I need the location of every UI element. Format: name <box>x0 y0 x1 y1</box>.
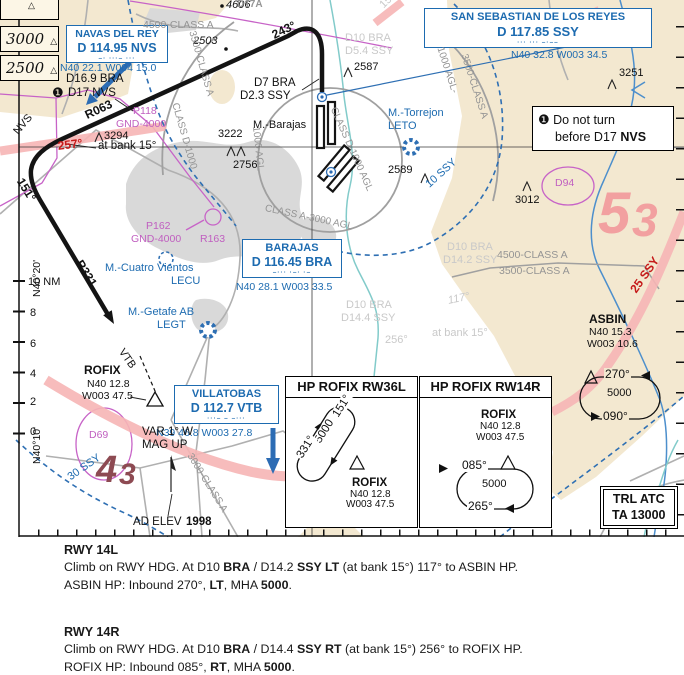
proc-text: ASBIN HP: Inbound 270°, <box>64 578 209 592</box>
proc-text-bold: BRA <box>223 560 250 574</box>
holding-patterns-layer <box>0 0 684 537</box>
proc-text-bold: SSY LT <box>297 560 339 574</box>
proc-text-bold: SSY RT <box>297 642 342 656</box>
holding-rw14r <box>457 469 533 509</box>
proc-rwy14l-line2: ASBIN HP: Inbound 270°, LT, MHA 5000. <box>64 578 292 592</box>
proc-text-bold: 5000 <box>264 660 292 674</box>
proc-rwy14l-line1: Climb on RWY HDG. At D10 BRA / D14.2 SSY… <box>64 560 518 574</box>
proc-text-bold: RT <box>210 660 227 674</box>
proc-text: Climb on RWY HDG. At D10 <box>64 642 223 656</box>
proc-text-bold: LT <box>209 578 223 592</box>
proc-rwy14r-line2: ROFIX HP: Inbound 085°, RT, MHA 5000. <box>64 660 295 674</box>
proc-text: (at bank 15°) 117° to ASBIN HP. <box>339 560 518 574</box>
proc-rwy14r-title: RWY 14R <box>64 625 120 639</box>
proc-text: . <box>291 660 294 674</box>
proc-text: , MHA <box>227 660 264 674</box>
holding-asbin-outbound-arrow <box>591 412 600 421</box>
proc-rwy14r-line1: Climb on RWY HDG. At D10 BRA / D14.4 SSY… <box>64 642 523 656</box>
proc-text: . <box>288 578 291 592</box>
holding-rw14r-fix-triangle <box>501 456 515 469</box>
holding-rw36l-fix-triangle <box>350 456 364 469</box>
proc-text: / D14.4 <box>250 642 297 656</box>
proc-rwy14l-title: RWY 14L <box>64 543 118 557</box>
holding-rw14r-outbound-arrow <box>505 504 514 513</box>
proc-text-bold: 5000 <box>261 578 289 592</box>
holding-rw14r-inbound-arrow <box>439 464 448 473</box>
holding-rw36l <box>289 399 364 488</box>
sid-chart: 3000△ 2500△ NAVAS DEL REY D 114.95 NVS –… <box>0 0 684 675</box>
proc-text: , MHA <box>224 578 261 592</box>
proc-text: Climb on RWY HDG. At D10 <box>64 560 223 574</box>
holding-asbin-fix-triangle <box>585 371 597 383</box>
proc-text: ROFIX HP: Inbound 085°, <box>64 660 210 674</box>
proc-text: (at bank 15°) 256° to ROFIX HP. <box>342 642 523 656</box>
proc-text-bold: BRA <box>223 642 250 656</box>
proc-text: / D14.2 <box>250 560 297 574</box>
